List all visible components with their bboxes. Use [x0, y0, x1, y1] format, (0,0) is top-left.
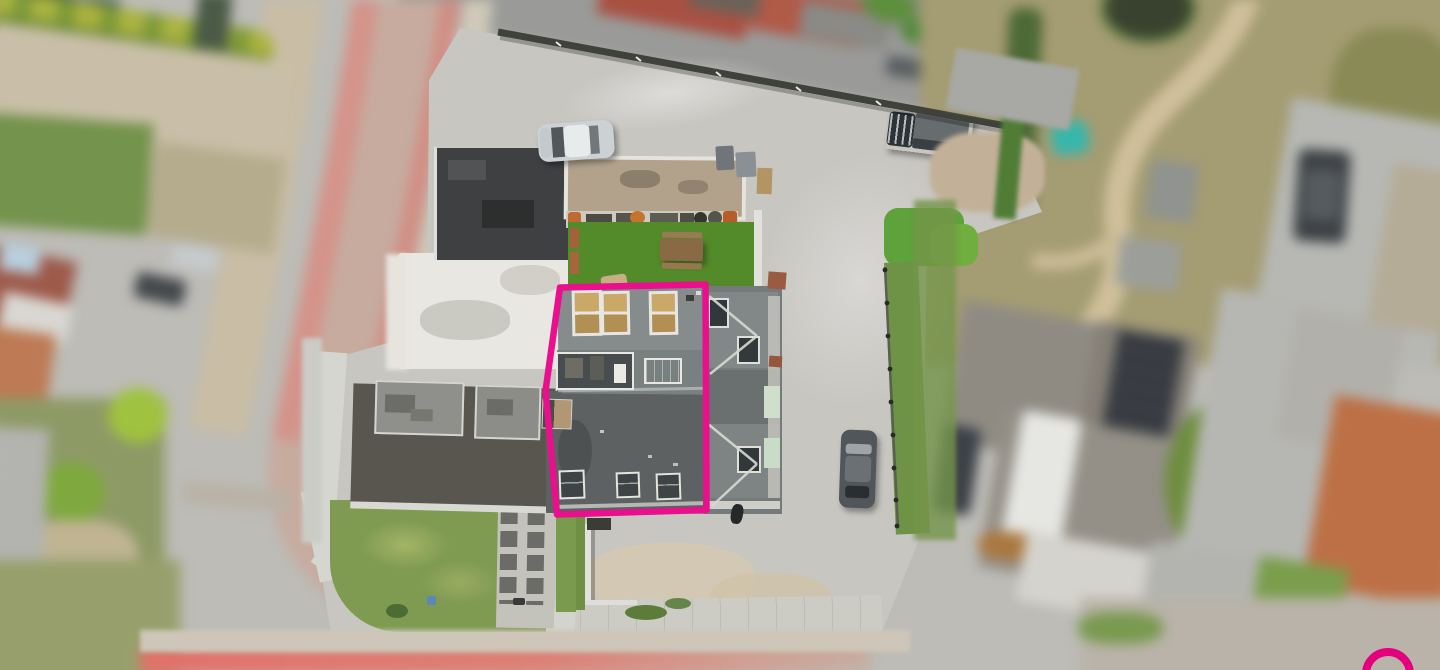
pallet-stack [757, 168, 773, 195]
blue-object-lawn [427, 596, 436, 605]
lawn-planter-left-2 [570, 252, 579, 274]
silver-car-roof [563, 124, 591, 158]
lawn-bush [386, 604, 408, 618]
roof-window-upper-2 [601, 291, 631, 335]
grey-car-east [839, 429, 878, 508]
hedge-east-top-2 [930, 224, 978, 266]
picnic-table [660, 239, 703, 262]
wheelie-bin-1 [715, 146, 734, 171]
white-roof-smudge-1 [420, 300, 510, 340]
neighbor-window-3 [737, 446, 761, 473]
neighbor-window-2 [737, 336, 760, 364]
bush-bottom-1 [625, 605, 667, 620]
paver-column-1 [499, 508, 518, 604]
roof-window-lower-3 [656, 473, 682, 501]
grass-strip-by-walkway [556, 512, 576, 612]
paver-column-2 [526, 509, 545, 605]
chimney [543, 400, 572, 429]
grey-car-windshield [846, 444, 872, 455]
grey-car-roof [845, 456, 872, 483]
picnic-table-group [660, 232, 705, 271]
dark-roof-patch-light [448, 160, 486, 180]
roof-window-lower-2 [616, 472, 641, 499]
roof-vent-dark [686, 295, 694, 301]
wheelie-bin-2 [735, 151, 756, 177]
gravel-roof-smudge [620, 170, 660, 188]
object-on-path [513, 598, 525, 605]
van-roof-rack [887, 113, 915, 146]
roof-window-upper-1 [572, 290, 603, 337]
roof-window-upper-3 [649, 291, 679, 335]
roof-fleck-1 [600, 430, 604, 433]
roof-fleck-2 [648, 455, 652, 458]
lawn-right-parapet [754, 210, 762, 290]
roof-vent-white [696, 291, 701, 295]
neighbor-glass-canopy-2 [764, 438, 780, 468]
atrium-white-unit [614, 364, 626, 383]
dark-bin-by-wall [587, 518, 611, 530]
dark-roof-patch-dark [482, 200, 534, 228]
southwest-building [350, 365, 556, 518]
grass-strip-by-wall [576, 515, 585, 610]
picnic-bench-top [662, 232, 702, 239]
picnic-bench-bottom [662, 263, 702, 270]
retaining-wall-shadow [591, 524, 595, 604]
sharp-property-layer [0, 0, 1440, 670]
bush-bottom-2 [665, 598, 691, 609]
roof-fleck-3 [673, 463, 678, 466]
neighbor-glass-canopy-1 [764, 386, 780, 418]
sw-flat-roof-b-patch [487, 399, 513, 416]
neighbor-window-1 [708, 298, 729, 328]
neighbor-house [704, 286, 782, 514]
sw-flat-roof-a-patch2 [411, 409, 433, 422]
gravel-roof-smudge-2 [678, 180, 708, 194]
white-roof-smudge-2 [500, 265, 560, 295]
atrium-reflection-1 [565, 358, 583, 378]
brown-paver-2 [769, 356, 783, 368]
retaining-wall-horizontal [585, 600, 637, 605]
aerial-photo [0, 0, 1440, 670]
lawn-planter-left-1 [570, 228, 579, 248]
grey-car-rear-window [845, 486, 869, 499]
brown-paver-1 [767, 271, 786, 289]
atrium-reflection-2 [590, 356, 604, 380]
silver-car [537, 119, 615, 162]
silver-car-rear-window [589, 125, 600, 154]
roof-window-lower-1 [559, 470, 586, 500]
box-roof-window [644, 358, 682, 384]
